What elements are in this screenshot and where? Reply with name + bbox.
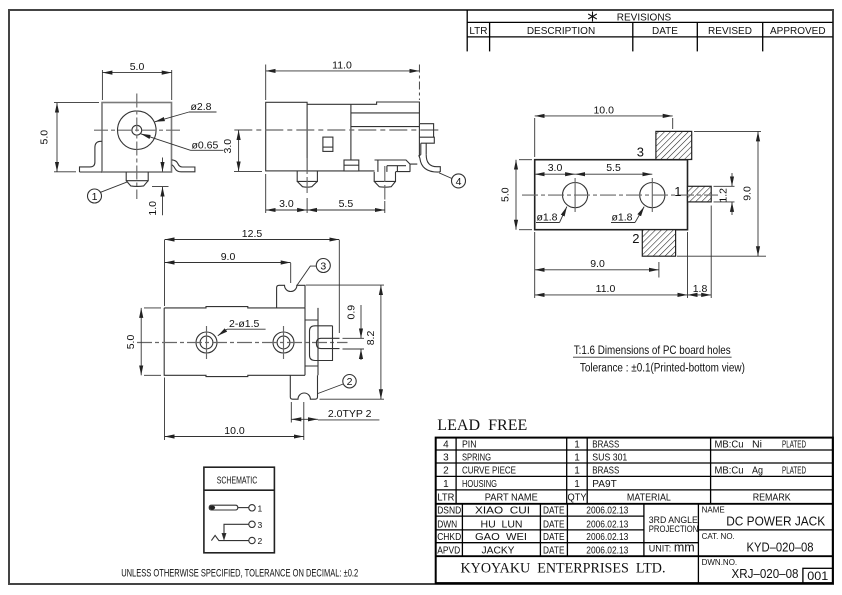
svg-text:GAO WEI: GAO WEI [475,532,527,543]
svg-text:DATE: DATE [543,546,565,557]
svg-text:DATE: DATE [543,532,565,543]
svg-text:KYD–020–08: KYD–020–08 [747,541,814,555]
svg-text:5.5: 5.5 [339,198,354,210]
svg-text:9.0: 9.0 [742,186,754,201]
svg-text:3.0: 3.0 [548,162,563,174]
svg-text:2006.02.13: 2006.02.13 [586,532,628,543]
svg-text:ø1.8: ø1.8 [612,212,633,224]
svg-text:1: 1 [574,479,580,490]
svg-text:1: 1 [258,503,263,513]
svg-text:ø1.8: ø1.8 [537,212,558,224]
svg-text:QTY: QTY [568,493,587,504]
svg-text:CURVE PIECE: CURVE PIECE [462,466,516,477]
svg-text:3: 3 [258,520,263,530]
svg-text:2: 2 [258,536,263,546]
svg-text:LEAD FREE: LEAD FREE [437,417,527,434]
svg-text:UNLESS OTHERWISE SPECIFIED,: UNLESS OTHERWISE SPECIFIED, TOLERANCE ON… [121,568,358,580]
svg-text:PIN: PIN [462,439,477,450]
svg-text:5.0: 5.0 [130,61,145,73]
svg-text:SUS 301: SUS 301 [592,452,627,463]
svg-text:T:1.6 Dimensions of PC boa: T:1.6 Dimensions of PC board holes [574,343,731,357]
svg-text:10.0: 10.0 [224,425,245,437]
svg-text:ø2.8: ø2.8 [191,101,212,113]
svg-text:BRASS: BRASS [592,439,619,450]
svg-text:12.5: 12.5 [242,228,263,240]
svg-text:11.0: 11.0 [332,59,352,71]
svg-text:HU LUN: HU LUN [481,519,523,530]
svg-text:LTR: LTR [469,26,487,37]
svg-text:PROJECTION: PROJECTION [649,524,699,534]
svg-text:2: 2 [632,231,639,246]
svg-text:5.0: 5.0 [39,130,51,145]
svg-text:1.2: 1.2 [718,188,730,203]
svg-text:1: 1 [674,184,681,199]
svg-text:2: 2 [443,466,449,477]
svg-text:ø0.65: ø0.65 [192,139,219,151]
svg-text:9.0: 9.0 [221,251,236,263]
svg-text:1: 1 [574,452,580,463]
svg-text:2006.02.13: 2006.02.13 [586,519,628,530]
svg-text:11.0: 11.0 [596,283,616,295]
svg-text:DWN: DWN [437,519,457,530]
svg-text:HOUSING: HOUSING [462,479,497,490]
svg-text:REVISIONS: REVISIONS [617,12,672,23]
svg-text:3.0: 3.0 [279,198,294,210]
svg-text:3: 3 [320,261,326,273]
svg-text:1: 1 [443,479,449,490]
svg-text:1: 1 [574,466,580,477]
svg-text:1: 1 [92,191,98,203]
svg-text:MB:CuAgPLATED: MB:CuAgPLATED [715,466,807,477]
svg-text:4: 4 [456,176,462,188]
svg-text:5.5: 5.5 [606,162,621,174]
svg-text:DWN.NO.: DWN.NO. [702,558,738,567]
svg-text:MATERIAL: MATERIAL [627,493,671,504]
svg-text:APVD: APVD [437,546,460,557]
svg-text:9.0: 9.0 [590,258,605,270]
svg-text:PA9T: PA9T [592,479,617,490]
svg-text:JACKY: JACKY [482,546,515,557]
svg-text:BRASS: BRASS [592,466,619,477]
svg-text:1.0: 1.0 [147,201,159,216]
svg-text:UNIT: mm: UNIT: mm [649,541,695,555]
svg-text:REMARK: REMARK [753,493,791,504]
svg-text:5.0: 5.0 [500,187,512,202]
svg-text:8.2: 8.2 [365,331,377,346]
svg-text:MB:CuNiPLATED: MB:CuNiPLATED [715,439,807,450]
svg-text:2006.02.13: 2006.02.13 [586,546,628,557]
svg-text:DC POWER JACK: DC POWER JACK [726,513,825,528]
svg-text:1: 1 [574,439,580,450]
svg-text:DESCRIPTION: DESCRIPTION [527,26,595,37]
svg-text:LTR: LTR [437,493,454,504]
svg-text:3.0: 3.0 [222,139,234,154]
svg-text:DATE: DATE [543,519,565,530]
svg-text:PART NAME: PART NAME [485,493,538,504]
svg-text:XIAO CUI: XIAO CUI [475,506,530,517]
svg-text:2.0TYP 2: 2.0TYP 2 [328,408,372,420]
svg-text:Tolerance : ±0.1(Printed-botto: Tolerance : ±0.1(Printed-bottom view) [580,363,745,375]
svg-text:APPROVED: APPROVED [770,26,826,37]
svg-text:2-ø1.5: 2-ø1.5 [229,318,260,330]
svg-text:2: 2 [347,376,353,388]
svg-text:DATE: DATE [543,506,565,517]
svg-text:XRJ–020–08: XRJ–020–08 [732,567,799,581]
svg-text:CHKD: CHKD [437,532,461,543]
svg-text:CAT. NO.: CAT. NO. [702,532,735,541]
svg-text:5.0: 5.0 [125,335,137,350]
svg-text:NAME: NAME [702,506,725,515]
svg-text:10.0: 10.0 [593,104,614,116]
svg-text:2006.02.13: 2006.02.13 [586,506,628,517]
svg-text:REVISED: REVISED [708,26,752,37]
svg-text:SPRING: SPRING [462,452,491,463]
svg-text:KYOYAKU ENTERPRISES LTD.: KYOYAKU ENTERPRISES LTD. [461,560,666,576]
svg-text:DATE: DATE [652,26,678,37]
svg-text:0.9: 0.9 [345,305,357,320]
svg-text:DSND: DSND [437,506,461,517]
svg-text:3: 3 [637,145,644,160]
svg-text:4: 4 [443,439,449,450]
svg-text:001: 001 [807,569,828,583]
svg-text:3: 3 [443,452,449,463]
svg-text:1.8: 1.8 [693,283,708,295]
svg-text:SCHEMATIC: SCHEMATIC [217,476,258,487]
